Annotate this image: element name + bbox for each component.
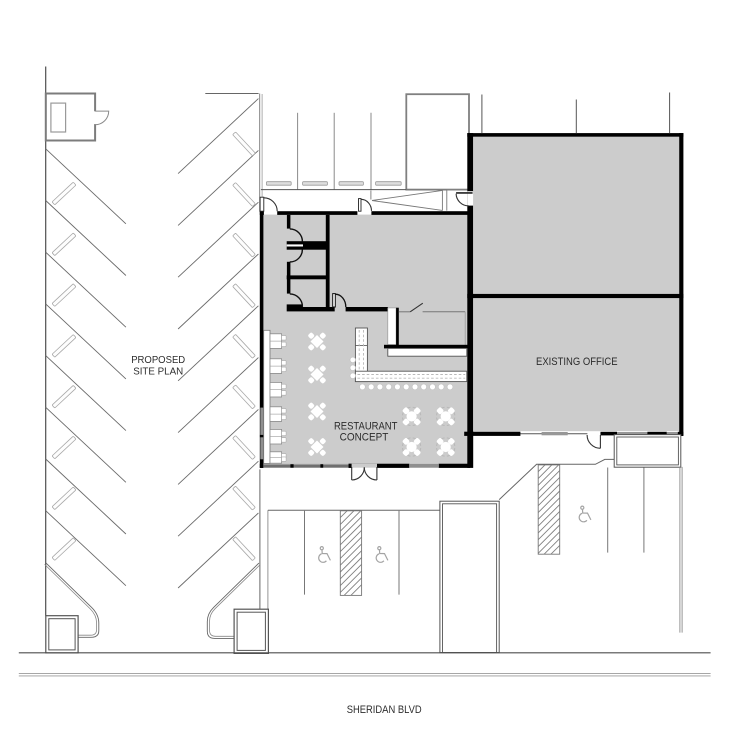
svg-text:CONCEPT: CONCEPT: [340, 432, 389, 444]
svg-text:SHERIDAN BLVD: SHERIDAN BLVD: [347, 704, 422, 716]
svg-text:EXISTING OFFICE: EXISTING OFFICE: [536, 356, 618, 368]
svg-text:PROPOSED: PROPOSED: [131, 355, 185, 366]
svg-text:SITE PLAN: SITE PLAN: [133, 366, 183, 377]
